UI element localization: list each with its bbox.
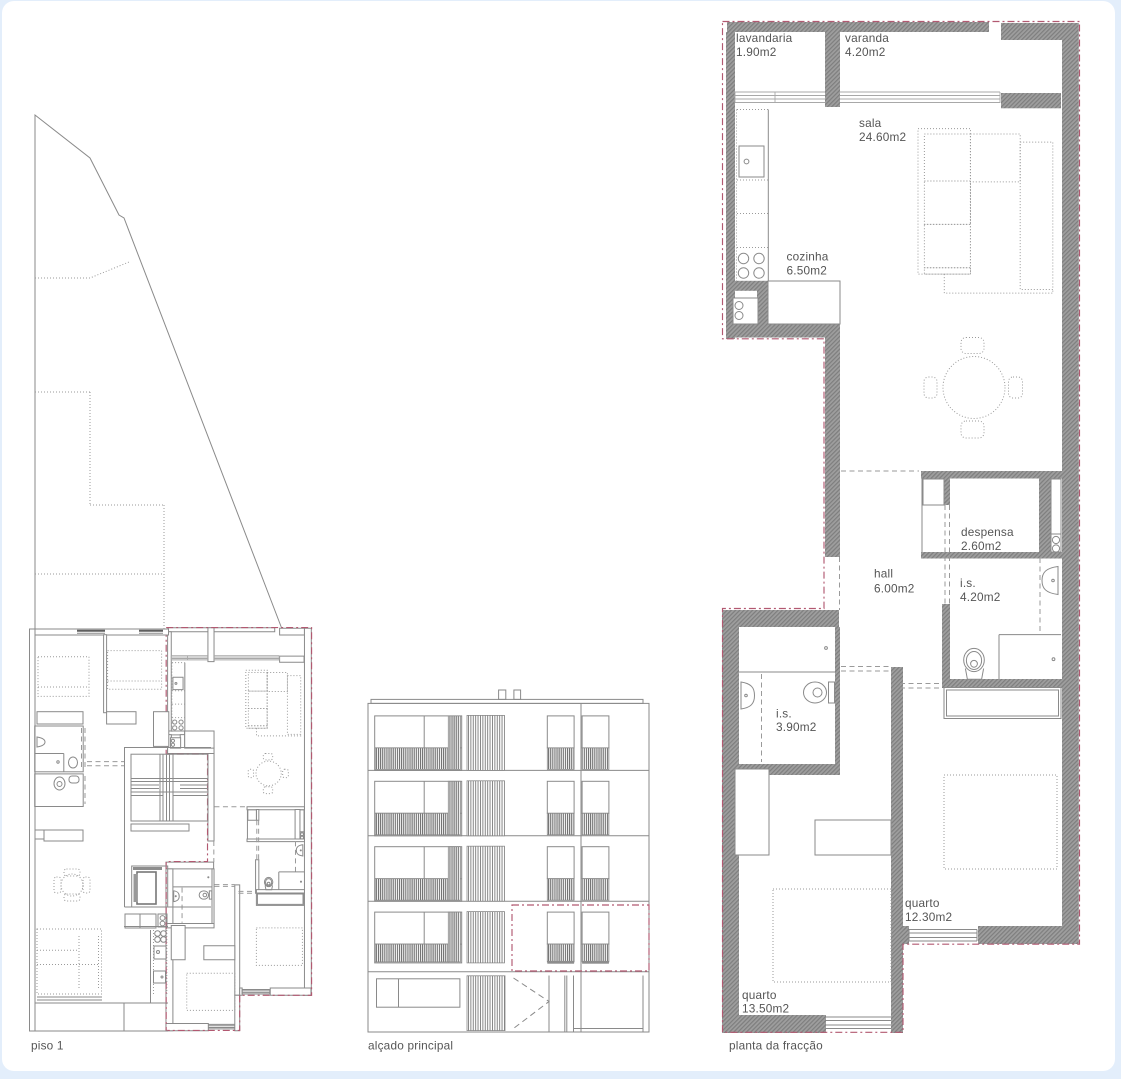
svg-text:despensa: despensa	[961, 525, 1014, 539]
svg-text:hall: hall	[874, 567, 893, 581]
svg-text:lavandaria: lavandaria	[736, 31, 793, 45]
svg-text:i.s.: i.s.	[776, 707, 792, 721]
svg-text:6.50m2: 6.50m2	[787, 264, 828, 278]
svg-text:4.20m2: 4.20m2	[845, 45, 886, 59]
svg-text:2.60m2: 2.60m2	[961, 539, 1002, 553]
svg-text:cozinha: cozinha	[787, 250, 829, 264]
svg-text:i.s.: i.s.	[960, 576, 976, 590]
svg-text:1.90m2: 1.90m2	[736, 45, 777, 59]
svg-text:12.30m2: 12.30m2	[905, 910, 952, 924]
svg-text:quarto: quarto	[905, 896, 940, 910]
svg-text:varanda: varanda	[845, 31, 889, 45]
svg-text:planta da fracção: planta da fracção	[729, 1038, 823, 1052]
svg-text:sala: sala	[859, 116, 882, 130]
svg-text:quarto: quarto	[742, 988, 777, 1002]
svg-text:13.50m2: 13.50m2	[742, 1002, 789, 1016]
svg-text:alçado principal: alçado principal	[368, 1038, 453, 1052]
svg-text:piso 1: piso 1	[31, 1038, 64, 1052]
svg-text:6.00m2: 6.00m2	[874, 582, 915, 596]
svg-text:24.60m2: 24.60m2	[859, 130, 906, 144]
svg-text:3.90m2: 3.90m2	[776, 720, 817, 734]
svg-text:4.20m2: 4.20m2	[960, 590, 1001, 604]
